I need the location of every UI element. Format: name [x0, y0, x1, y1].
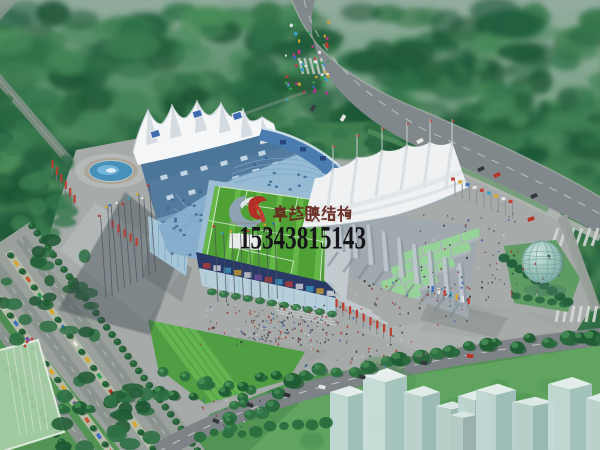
svg-text:15343815143: 15343815143: [239, 221, 366, 257]
